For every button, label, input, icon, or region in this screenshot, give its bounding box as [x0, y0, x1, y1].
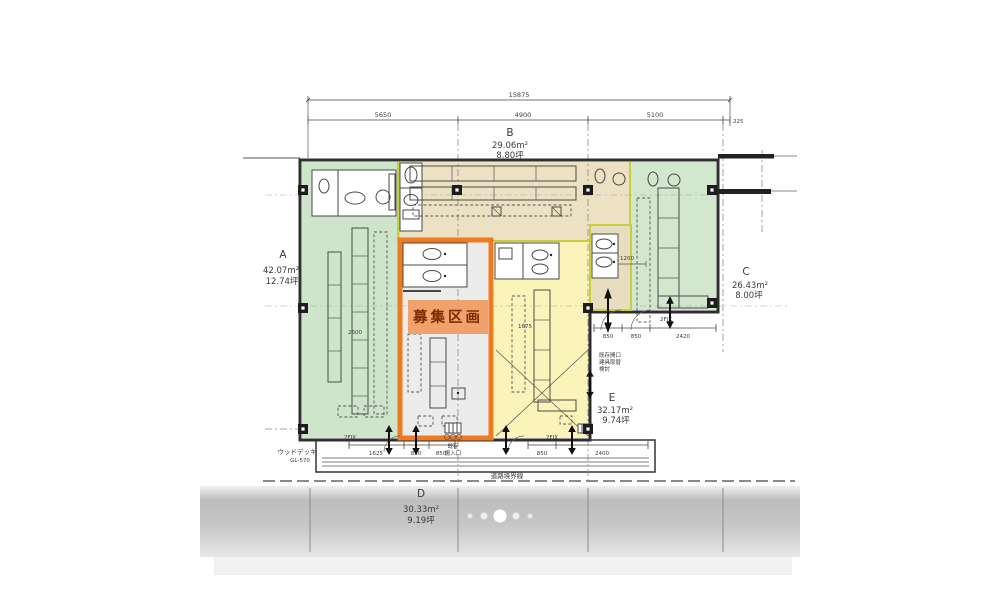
section-a-m2: 42.07m²	[263, 266, 299, 276]
dim-seg1: 5650	[375, 111, 392, 119]
section-b-tsubo: 8.80坪	[496, 151, 524, 161]
dim-seg2: 4900	[515, 111, 532, 119]
entry-note-2: 搬入口	[445, 449, 462, 457]
dim-b4: 850	[537, 451, 548, 457]
section-d-id: D	[417, 488, 425, 500]
dim-r1: 850	[603, 334, 614, 340]
dim-i3: 1200	[620, 256, 634, 262]
dim-b5: 2400	[595, 451, 609, 457]
section-c-tsubo: 8.00坪	[735, 291, 763, 301]
carousel-dot-5[interactable]	[528, 514, 533, 519]
road-boundary-label: 道路境界線	[491, 471, 524, 480]
fix-label-2: 2FIX	[546, 435, 558, 441]
section-c-id: C	[742, 266, 749, 278]
dim-overall: 15875	[509, 91, 530, 99]
carousel-dot-1[interactable]	[468, 514, 473, 519]
section-b-m2: 29.06m²	[492, 141, 528, 151]
carousel-dot-4[interactable]	[513, 513, 520, 520]
entry-note-1: 既存	[447, 442, 459, 450]
e-note-2: 建具取替	[599, 358, 622, 366]
e-note-1: 既存開口	[599, 351, 621, 359]
dim-seg3: 5100	[647, 111, 664, 119]
carousel-dot-2[interactable]	[481, 513, 488, 520]
dim-i1: 2600	[348, 330, 362, 336]
section-e-m2: 32.17m²	[597, 406, 633, 416]
section-c-m2: 26.43m²	[732, 281, 768, 291]
carousel-dot-3-active[interactable]	[494, 510, 507, 523]
highlight-label: 募集区画	[412, 308, 483, 326]
section-e-id: E	[609, 392, 616, 404]
dim-r2: 850	[631, 334, 642, 340]
photo-viewer: 募集区画 15875 5650 4900 5100 225 1625 850	[0, 0, 1000, 600]
section-d-m2: 30.33m²	[403, 505, 439, 515]
section-e-tsubo: 9.74坪	[602, 416, 630, 426]
dim-seg4: 225	[733, 119, 744, 125]
gl-label: GL-570	[290, 458, 310, 464]
wood-deck-label: ウッドデッキ	[278, 447, 317, 456]
section-a-id: A	[279, 249, 287, 261]
section-b-id: B	[506, 127, 513, 139]
dim-i2: 1675	[518, 324, 532, 330]
section-a-tsubo: 12.74坪	[266, 277, 299, 287]
viewer-bottom-band	[200, 486, 800, 575]
section-d-tsubo: 9.19坪	[407, 516, 435, 526]
e-note-3: 検討	[599, 365, 611, 373]
right-dimensions: 850 850 2420 2FIX	[594, 310, 716, 340]
dim-r3: 2420	[676, 334, 690, 340]
dim-b1: 1625	[369, 451, 383, 457]
fix-label-1: 2FIX	[344, 435, 356, 441]
floorplan-image[interactable]: 募集区画 15875 5650 4900 5100 225 1625 850	[0, 0, 1000, 600]
